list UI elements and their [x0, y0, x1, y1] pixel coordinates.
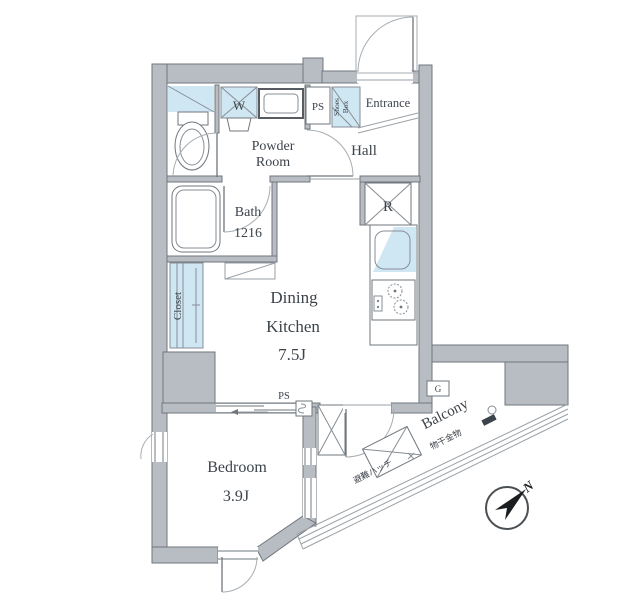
bedroom-bottom-window [218, 547, 258, 592]
bedroom-label: Bedroom [207, 459, 267, 476]
compass: N [486, 477, 537, 529]
entrance-door [356, 16, 417, 83]
vanity-sink [259, 89, 303, 118]
closet-label: Closet [172, 292, 184, 320]
shoes-box-label-2: Box [341, 101, 350, 114]
stove [372, 280, 415, 320]
hall-label: Hall [351, 143, 377, 159]
pipe-shaft [318, 405, 345, 455]
refrigerator-label: R [383, 199, 393, 215]
bedroom-size-label: 3.9J [223, 488, 249, 505]
dining-kitchen-label-1: Dining [270, 288, 318, 307]
washer-pan [227, 118, 251, 131]
gas-meter: G [427, 381, 449, 396]
shoes-box: Shoes Box [332, 87, 360, 127]
pipe-space-bottom-label: PS [278, 391, 290, 402]
powder-room-label-1: Powder [252, 139, 295, 154]
floor-plan-svg: W PS Shoes Box Entrance Hall Powder Room [0, 0, 640, 613]
laundry-hardware-label: 物干金物 [428, 427, 463, 452]
entrance-label: Entrance [366, 96, 411, 110]
dining-kitchen-size-label: 7.5J [278, 345, 306, 364]
bathtub [172, 186, 220, 252]
pipe-space-top-label: PS [312, 101, 324, 113]
kitchen-counter [370, 225, 417, 345]
shoes-box-label-1: Shoes [332, 98, 341, 116]
pipe-space-top: PS [306, 87, 330, 124]
dining-kitchen-label-2: Kitchen [266, 317, 320, 336]
powder-room-door [307, 130, 353, 176]
entrance-step [358, 113, 418, 133]
drain-fixture [296, 401, 312, 416]
bedroom-balcony-windows [303, 448, 316, 518]
refrigerator-space: R [365, 183, 411, 225]
washing-machine: W [221, 87, 257, 131]
floor-plan: W PS Shoes Box Entrance Hall Powder Room [0, 0, 640, 613]
bedroom-left-window [141, 432, 167, 462]
bath-label: Bath [235, 205, 261, 220]
toilet-area [168, 86, 217, 177]
bath-size-label: 1216 [234, 226, 262, 241]
powder-room-label-2: Room [256, 155, 290, 170]
washer-label: W [233, 98, 246, 113]
closet: Closet [170, 263, 203, 348]
bath-counter [225, 263, 275, 279]
gas-meter-label: G [435, 384, 442, 394]
